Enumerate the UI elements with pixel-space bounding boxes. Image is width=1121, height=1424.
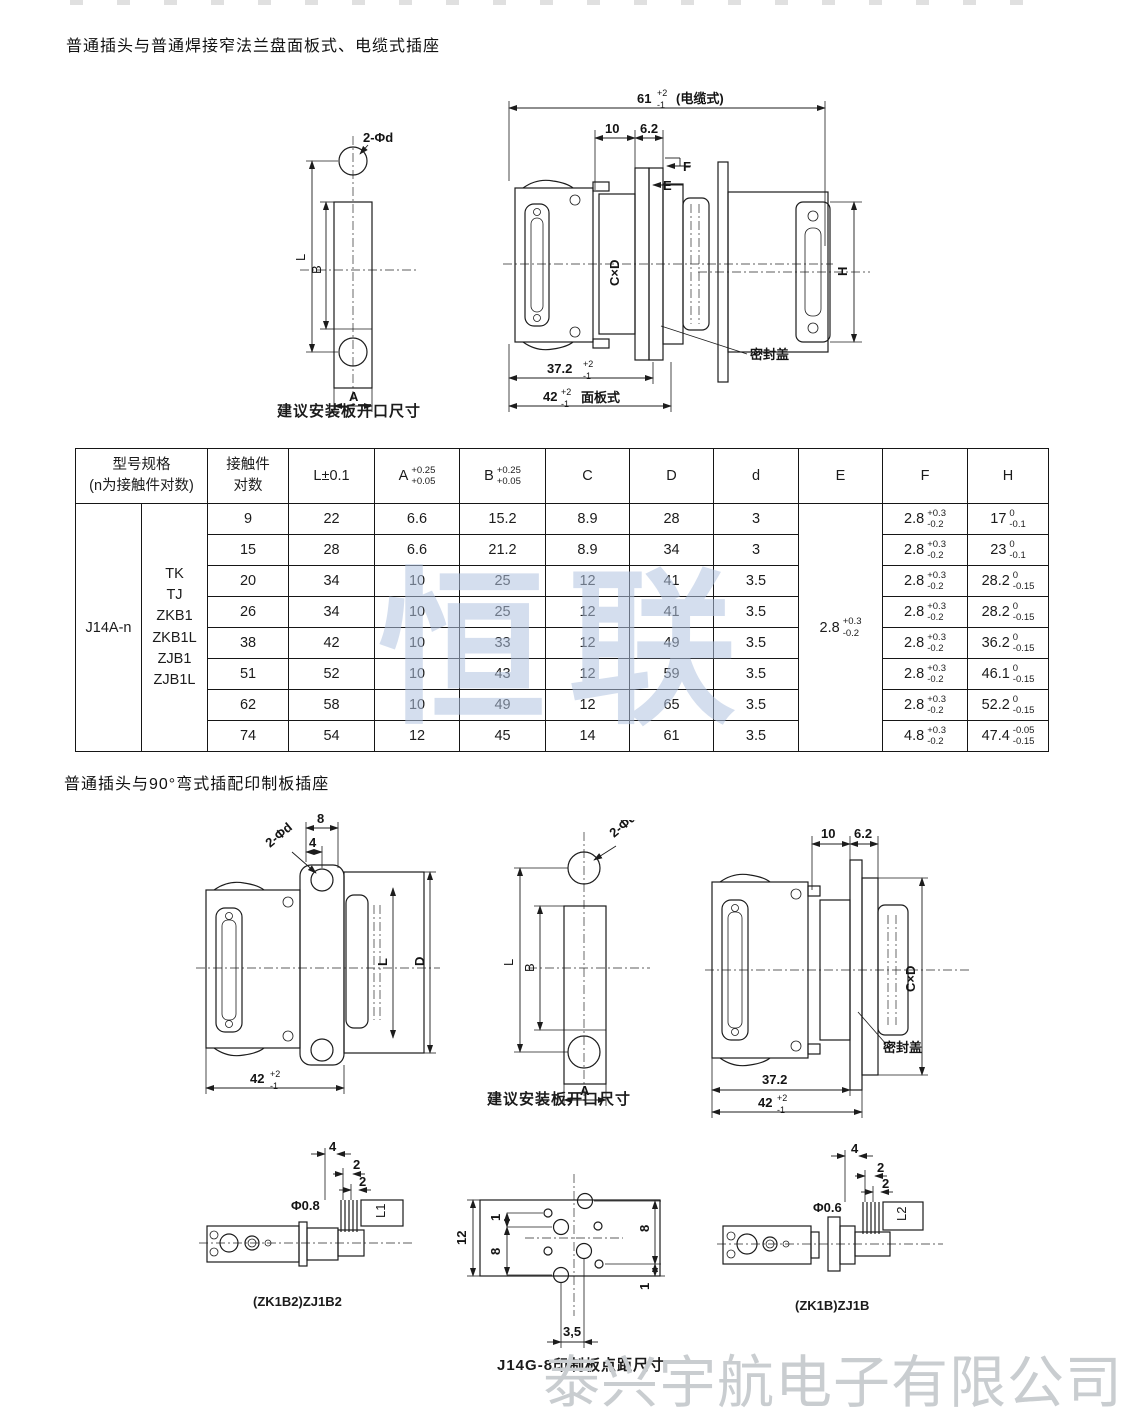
- cell-d: 3: [714, 504, 799, 535]
- cell-n: 62: [208, 690, 289, 721]
- cell-D: 59: [630, 659, 714, 690]
- cell-F: 2.8+0.3-0.2: [883, 566, 968, 597]
- dim-61-tol-up: +2: [657, 88, 667, 98]
- cell-B: 49: [460, 690, 546, 721]
- E-tol-up: +0.3: [843, 616, 862, 627]
- pin-length-box: L1: [361, 1200, 403, 1226]
- pins: [341, 1200, 357, 1232]
- table-row: 5152104312593.5 2.8+0.3-0.2 46.10-0.15: [76, 659, 1049, 690]
- label-E: E: [663, 178, 672, 193]
- dim-12-label: 12: [455, 1231, 469, 1245]
- col-D-header: D: [630, 449, 714, 504]
- pcb-pattern-caption: J14G-8印制板点距尺寸: [497, 1354, 665, 1375]
- dim-2a: 2: [877, 1160, 884, 1175]
- col-B-tol-up: +0.25: [497, 465, 521, 476]
- cell-d: 3.5: [714, 721, 799, 752]
- cell-L: 58: [289, 690, 375, 721]
- dimension-35: 3,5: [547, 1259, 598, 1348]
- hole-callout: 2-Φd: [262, 819, 295, 850]
- dimensions: L B A 2-Φd: [293, 130, 393, 412]
- cell-H: 52.20-0.15: [968, 690, 1049, 721]
- cell-n: 74: [208, 721, 289, 752]
- pcb-connector-right-caption: (ZK1B)ZJ1B: [795, 1298, 869, 1313]
- cell-D: 41: [630, 566, 714, 597]
- types-cell: TK TJ ZKB1 ZKB1L ZJB1 ZJB1L: [142, 504, 208, 752]
- cell-L: 42: [289, 628, 375, 659]
- cell-n: 9: [208, 504, 289, 535]
- dim-8: 8: [317, 811, 324, 826]
- cell-A: 12: [375, 721, 460, 752]
- dimension-L: L: [375, 888, 393, 1038]
- pcb-connector-right-drawing: 4 2 2 Φ0.6 L2: [715, 1142, 960, 1312]
- dim-42: 42: [543, 389, 557, 404]
- dim-61-tol-dn: -1: [657, 100, 665, 110]
- cell-D: 28: [630, 504, 714, 535]
- dim-2b: 2: [882, 1176, 889, 1191]
- s2-mounting-plate-drawing: L B A 2-Φd: [468, 820, 693, 1110]
- top-dimensions: 8 4 2-Φd: [262, 811, 338, 873]
- cell-C: 12: [546, 566, 630, 597]
- cell-F: 4.8+0.3-0.2: [883, 721, 968, 752]
- cell-d: 3.5: [714, 690, 799, 721]
- cropped-text-remnant: [70, 0, 1050, 5]
- header-row: 型号规格 (n为接触件对数) 接触件 对数 L±0.1 A+0.25+0.05 …: [76, 449, 1049, 504]
- dimension-12: 12: [455, 1200, 480, 1276]
- cell-H: 170-0.1: [968, 504, 1049, 535]
- cell-F: 2.8+0.3-0.2: [883, 504, 968, 535]
- label-CxD: C×D: [903, 966, 918, 992]
- cell-d: 3: [714, 535, 799, 566]
- seal-callout: 密封盖: [858, 1012, 922, 1055]
- dim-42-tol-dn: -1: [270, 1081, 278, 1091]
- col-H-header: H: [968, 449, 1049, 504]
- dim-8a-label: 8: [488, 1248, 503, 1255]
- dim-L-label: L: [293, 254, 308, 261]
- pcb-connector-left-drawing: 4 2 2 Φ0.8 L1: [195, 1142, 430, 1302]
- cell-n: 15: [208, 535, 289, 566]
- datasheet-page: { "section1": { "title": "普通插头与普通焊接窄法兰盘面…: [0, 0, 1121, 1424]
- cell-F: 2.8+0.3-0.2: [883, 659, 968, 690]
- s1-panel-view-drawing: H: [688, 150, 878, 395]
- cell-D: 34: [630, 535, 714, 566]
- top-dimensions: 4 2 2: [311, 1142, 371, 1200]
- cell-H: 28.20-0.15: [968, 597, 1049, 628]
- cell-D: 41: [630, 597, 714, 628]
- dimensions: L B A 2-Φd: [501, 820, 639, 1106]
- connector-body: [712, 860, 908, 1090]
- hole-callout: 2-Φd: [363, 130, 393, 145]
- cell-B: 25: [460, 597, 546, 628]
- col-B-letter: B: [484, 468, 494, 484]
- dimension-8-right: 8: [594, 1201, 661, 1264]
- cell-C: 12: [546, 690, 630, 721]
- cell-B: 21.2: [460, 535, 546, 566]
- cell-H: 28.20-0.15: [968, 566, 1049, 597]
- cell-L: 34: [289, 597, 375, 628]
- table-row: 2034102512413.5 2.8+0.3-0.2 28.20-0.15: [76, 566, 1049, 597]
- dimension-10-62: 10 6.2: [812, 826, 878, 890]
- top-dimensions: 4 2 2: [831, 1142, 893, 1202]
- table-row: 2634102512413.5 2.8+0.3-0.2 28.20-0.15: [76, 597, 1049, 628]
- cell-H: 46.10-0.15: [968, 659, 1049, 690]
- dim-2b: 2: [359, 1174, 366, 1189]
- dimension-1-left: 1: [488, 1213, 552, 1227]
- dim-1a-label: 1: [488, 1214, 503, 1221]
- col-F-header: F: [883, 449, 968, 504]
- dim-61: 61: [637, 91, 651, 106]
- dim-6-2: 6.2: [854, 826, 872, 841]
- dim-42: 42: [250, 1071, 264, 1086]
- dim-L-label: L: [501, 959, 516, 966]
- centerlines: [528, 832, 650, 1104]
- cell-n: 26: [208, 597, 289, 628]
- cell-C: 12: [546, 659, 630, 690]
- pin-diameter-label: Φ0.6: [813, 1200, 842, 1215]
- table-row: 15286.621.28.9343 2.8+0.3-0.2 230-0.1: [76, 535, 1049, 566]
- dim-42-tol-up: +2: [270, 1069, 280, 1079]
- s2-plate-caption: 建议安装板开口尺寸: [487, 1088, 631, 1109]
- cell-B: 15.2: [460, 504, 546, 535]
- dim-42-tol-up: +2: [561, 387, 571, 397]
- dim-42: 42: [758, 1095, 772, 1110]
- dim-8b-label: 8: [637, 1225, 652, 1232]
- col-contacts-header: 接触件 对数: [208, 449, 289, 504]
- cell-A: 10: [375, 690, 460, 721]
- E-tol-dn: -0.2: [843, 628, 862, 639]
- labels-F-E: F E: [653, 158, 691, 193]
- dim-B-label: B: [522, 963, 537, 972]
- pin-length-box: L2: [883, 1202, 923, 1230]
- connector-body: [206, 865, 424, 1065]
- cell-n: 51: [208, 659, 289, 690]
- pin-length-label: L1: [373, 1204, 388, 1218]
- cell-L: 54: [289, 721, 375, 752]
- col-B-header: B+0.25+0.05: [460, 449, 546, 504]
- dim-10: 10: [605, 121, 619, 136]
- s1-mounting-plate-drawing: L B A 2-Φd: [250, 128, 470, 420]
- section2-title: 普通插头与90°弯式插配印制板插座: [64, 770, 329, 794]
- cell-L: 34: [289, 566, 375, 597]
- cell-A: 10: [375, 659, 460, 690]
- centerlines: [525, 1174, 623, 1316]
- col-A-tol-dn: +0.05: [411, 476, 435, 487]
- table-row: 6258104912653.5 2.8+0.3-0.2 52.20-0.15: [76, 690, 1049, 721]
- cell-d: 3.5: [714, 566, 799, 597]
- pins: [863, 1202, 879, 1234]
- col-model-header: 型号规格 (n为接触件对数): [76, 449, 208, 504]
- cell-H: 47.4-0.05-0.15: [968, 721, 1049, 752]
- cell-F: 2.8+0.3-0.2: [883, 597, 968, 628]
- s1-plate-caption: 建议安装板开口尺寸: [277, 400, 421, 421]
- cell-C: 12: [546, 628, 630, 659]
- model-cell: J14A-n: [76, 504, 142, 752]
- dim-1b-label: 1: [637, 1283, 652, 1290]
- cell-F: 2.8+0.3-0.2: [883, 628, 968, 659]
- s2-side-view-drawing: 10 6.2 C×D 密封盖 37.2: [700, 820, 985, 1122]
- cell-H: 230-0.1: [968, 535, 1049, 566]
- dim-42-tol-dn: -1: [561, 399, 569, 409]
- cell-F: 2.8+0.3-0.2: [883, 535, 968, 566]
- dim-372-tol-up: +2: [583, 359, 593, 369]
- col-A-header: A+0.25+0.05: [375, 449, 460, 504]
- table-row: 3842103312493.5 2.8+0.3-0.2 36.20-0.15: [76, 628, 1049, 659]
- spec-table: 型号规格 (n为接触件对数) 接触件 对数 L±0.1 A+0.25+0.05 …: [75, 448, 1049, 752]
- cell-C: 14: [546, 721, 630, 752]
- hole-callout: 2-Φd: [606, 820, 639, 840]
- col-L-header: L±0.1: [289, 449, 375, 504]
- dim-L-label: L: [375, 958, 390, 966]
- cell-A: 10: [375, 628, 460, 659]
- cell-d: 3.5: [714, 659, 799, 690]
- dim-372-tol-dn: -1: [583, 371, 591, 381]
- cell-C: 8.9: [546, 535, 630, 566]
- cell-A: 10: [375, 566, 460, 597]
- pin-diameter-label: Φ0.8: [291, 1198, 320, 1213]
- dim-4: 4: [851, 1142, 859, 1156]
- dim-B-label: B: [309, 265, 324, 274]
- cell-d: 3.5: [714, 597, 799, 628]
- seal-label: 密封盖: [882, 1040, 922, 1055]
- col-B-tol-dn: +0.05: [497, 476, 521, 487]
- dim-372: 37.2: [762, 1072, 787, 1087]
- table-row: J14A-n TK TJ ZKB1 ZKB1L ZJB1 ZJB1L 9 22 …: [76, 504, 1049, 535]
- col-A-letter: A: [399, 468, 409, 484]
- dimension-8-left: 8: [488, 1227, 552, 1275]
- cell-A: 6.6: [375, 535, 460, 566]
- cell-B: 25: [460, 566, 546, 597]
- cell-F: 2.8+0.3-0.2: [883, 690, 968, 721]
- cell-D: 49: [630, 628, 714, 659]
- cell-A: 6.6: [375, 504, 460, 535]
- cell-B: 45: [460, 721, 546, 752]
- cell-d: 3.5: [714, 628, 799, 659]
- col-A-tol-up: +0.25: [411, 465, 435, 476]
- col-d-header: d: [714, 449, 799, 504]
- cell-L: 28: [289, 535, 375, 566]
- cell-H: 36.20-0.15: [968, 628, 1049, 659]
- cell-n: 20: [208, 566, 289, 597]
- cell-L: 22: [289, 504, 375, 535]
- section1-title: 普通插头与普通焊接窄法兰盘面板式、电缆式插座: [66, 32, 440, 56]
- cell-B: 33: [460, 628, 546, 659]
- dim-10: 10: [821, 826, 835, 841]
- dimension-1-right: 1: [637, 1264, 665, 1290]
- dim-42-tol-dn: -1: [777, 1105, 785, 1115]
- s2-rear-view-drawing: 8 4 2-Φd L D 42 +2: [188, 810, 463, 1105]
- dim-35-label: 3,5: [563, 1324, 581, 1339]
- cell-B: 43: [460, 659, 546, 690]
- dimension-10-62: 10 6.2: [595, 121, 663, 190]
- col-C-header: C: [546, 449, 630, 504]
- dim-D-label: D: [412, 957, 427, 966]
- dim-61-note: (电缆式): [676, 91, 724, 106]
- cell-n: 38: [208, 628, 289, 659]
- bottom-dimension-42: 42 +2 -1: [712, 1090, 862, 1118]
- table-row: 7454124514613.5 4.8+0.3-0.2 47.4-0.05-0.…: [76, 721, 1049, 752]
- cell-D: 65: [630, 690, 714, 721]
- cell-L: 52: [289, 659, 375, 690]
- dim-4: 4: [309, 835, 317, 850]
- dim-42-note: 面板式: [581, 390, 620, 405]
- dim-2a: 2: [353, 1157, 360, 1172]
- pin-length-label: L2: [894, 1207, 909, 1221]
- dim-372: 37.2: [547, 361, 572, 376]
- cell-C: 12: [546, 597, 630, 628]
- E-value: 2.8: [820, 620, 840, 636]
- label-CxD: C×D: [607, 260, 622, 286]
- cell-A: 10: [375, 597, 460, 628]
- dim-6-2: 6.2: [640, 121, 658, 136]
- col-E-header: E: [799, 449, 883, 504]
- dim-42-tol-up: +2: [777, 1093, 787, 1103]
- pcb-connector-left-caption: (ZK1B2)ZJ1B2: [253, 1294, 342, 1309]
- cell-D: 61: [630, 721, 714, 752]
- dim-H-label: H: [835, 267, 850, 276]
- pcb-hole-pattern-drawing: 12 1 8 8 1 3,5: [455, 1170, 710, 1370]
- cell-E-merged: 2.8+0.3-0.2: [799, 504, 883, 752]
- bottom-dimension-42: 42 +2 -1 面板式: [509, 362, 671, 412]
- dim-4: 4: [329, 1142, 337, 1154]
- cell-C: 8.9: [546, 504, 630, 535]
